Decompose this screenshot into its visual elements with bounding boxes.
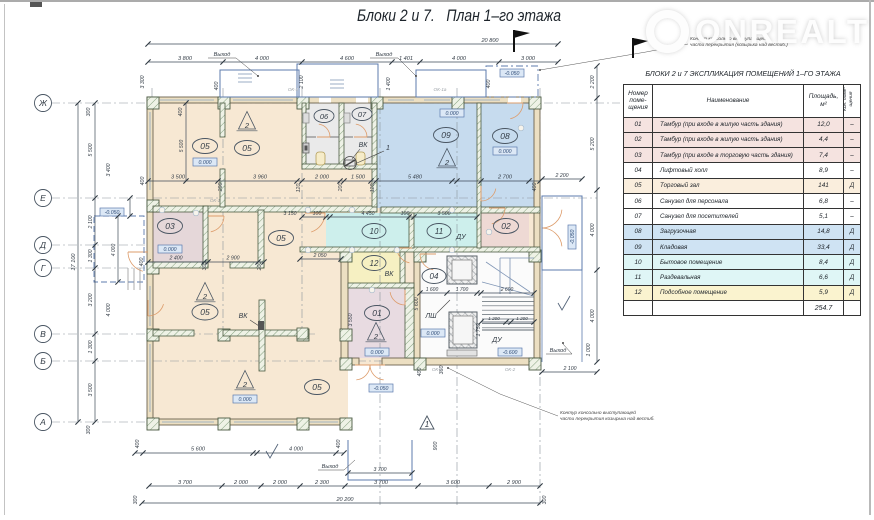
svg-text:400: 400: [178, 108, 184, 117]
svg-text:300: 300: [133, 496, 139, 505]
svg-text:100: 100: [401, 211, 410, 217]
svg-text:4 000: 4 000: [590, 309, 596, 322]
svg-text:3 700: 3 700: [374, 467, 387, 473]
svg-text:Выход: Выход: [376, 52, 393, 58]
svg-text:400: 400: [135, 440, 141, 449]
svg-text:2 200: 2 200: [555, 173, 569, 179]
svg-text:4 000: 4 000: [255, 56, 270, 62]
svg-text:3 550: 3 550: [348, 313, 354, 326]
svg-text:02: 02: [501, 221, 511, 231]
svg-text:5 500: 5 500: [179, 140, 185, 153]
svg-text:4 450: 4 450: [362, 211, 375, 217]
svg-text:Д: Д: [39, 240, 46, 250]
svg-text:3 700: 3 700: [374, 480, 389, 486]
svg-text:300: 300: [86, 426, 92, 435]
svg-text:2: 2: [444, 158, 450, 167]
svg-text:400: 400: [139, 258, 145, 267]
svg-text:05: 05: [200, 141, 210, 151]
svg-text:части перекрытия козырька над: части перекрытия козырька над вестиб.: [560, 416, 655, 422]
svg-text:ОК-1: ОК-1: [288, 87, 299, 92]
svg-text:-0.050: -0.050: [374, 386, 389, 392]
svg-text:1 700: 1 700: [456, 287, 469, 293]
svg-text:4 000: 4 000: [289, 447, 304, 453]
svg-text:4 000: 4 000: [106, 303, 112, 316]
svg-text:1: 1: [425, 420, 429, 429]
svg-text:Ж: Ж: [38, 98, 48, 108]
svg-text:Б: Б: [40, 356, 46, 366]
svg-text:Выход: Выход: [214, 52, 231, 58]
svg-text:12: 12: [370, 259, 379, 268]
svg-text:0.000: 0.000: [427, 331, 440, 337]
svg-text:0.000: 0.000: [199, 160, 212, 166]
svg-text:3 960: 3 960: [253, 175, 268, 181]
svg-text:В: В: [40, 329, 46, 339]
svg-text:2 900: 2 900: [226, 256, 240, 262]
svg-text:ОК-2: ОК-2: [432, 367, 443, 372]
svg-text:2: 2: [242, 380, 248, 389]
svg-text:2 400: 2 400: [169, 256, 183, 262]
svg-text:0.000: 0.000: [164, 247, 177, 253]
svg-text:1 400: 1 400: [386, 77, 392, 90]
svg-text:1 300: 1 300: [88, 249, 94, 262]
svg-text:400: 400: [140, 177, 146, 186]
svg-text:0.000: 0.000: [371, 350, 384, 356]
svg-text:ДУ: ДУ: [491, 337, 503, 344]
svg-text:17 100: 17 100: [71, 253, 77, 271]
svg-text:100: 100: [313, 211, 322, 217]
svg-text:2 100: 2 100: [88, 215, 94, 229]
svg-text:400: 400: [336, 440, 342, 449]
svg-text:3 500: 3 500: [438, 211, 451, 217]
svg-text:3 800: 3 800: [178, 56, 193, 62]
svg-text:1 000: 1 000: [586, 343, 592, 356]
svg-text:5 480: 5 480: [408, 175, 423, 181]
svg-text:ДУ: ДУ: [455, 234, 467, 241]
svg-text:5 600: 5 600: [191, 447, 206, 453]
svg-text:300: 300: [86, 108, 92, 117]
svg-text:04: 04: [430, 272, 439, 281]
svg-text:2 600: 2 600: [500, 287, 514, 293]
svg-text:2: 2: [373, 332, 379, 341]
svg-text:2 000: 2 000: [314, 175, 330, 181]
svg-text:2 000: 2 000: [272, 480, 288, 486]
svg-text:4 000: 4 000: [111, 244, 117, 257]
svg-text:06: 06: [320, 112, 329, 121]
svg-text:0.000: 0.000: [446, 111, 459, 117]
svg-text:2 100: 2 100: [299, 75, 305, 89]
svg-text:20 800: 20 800: [480, 38, 499, 44]
svg-text:3 700: 3 700: [178, 480, 193, 486]
svg-text:1 500: 1 500: [351, 175, 366, 181]
svg-text:2: 2: [244, 121, 250, 130]
svg-text:07: 07: [358, 110, 367, 119]
svg-text:ОК-1а: ОК-1а: [434, 87, 447, 92]
svg-text:2 200: 2 200: [590, 75, 596, 89]
svg-text:ОК-2: ОК-2: [505, 367, 516, 372]
svg-text:2: 2: [202, 292, 208, 301]
svg-text:1 300: 1 300: [88, 340, 94, 353]
svg-text:1 200: 1 200: [488, 316, 500, 321]
svg-text:ВК: ВК: [239, 313, 249, 320]
svg-text:200: 200: [257, 262, 263, 272]
svg-text:0.000: 0.000: [499, 149, 512, 155]
svg-text:10: 10: [370, 227, 379, 236]
svg-text:03: 03: [165, 221, 175, 231]
svg-text:400: 400: [417, 368, 423, 377]
svg-text:4 000: 4 000: [590, 223, 596, 236]
svg-text:300: 300: [202, 262, 208, 271]
svg-text:400: 400: [486, 80, 492, 89]
svg-text:1: 1: [386, 145, 390, 152]
svg-text:4 600: 4 600: [340, 56, 355, 62]
svg-text:ВК: ВК: [359, 142, 369, 149]
svg-text:1 401: 1 401: [399, 56, 413, 62]
svg-text:20 200: 20 200: [335, 497, 354, 503]
svg-text:120: 120: [370, 184, 376, 193]
svg-text:05: 05: [276, 233, 286, 243]
svg-text:А: А: [39, 417, 46, 427]
svg-text:-0.050: -0.050: [105, 210, 120, 216]
svg-text:01: 01: [372, 308, 382, 318]
svg-text:2 700: 2 700: [497, 175, 513, 181]
svg-text:3 600: 3 600: [446, 480, 461, 486]
svg-text:3 300: 3 300: [140, 75, 146, 88]
svg-text:120: 120: [296, 184, 302, 193]
svg-text:0.000: 0.000: [239, 397, 252, 403]
svg-text:ВК: ВК: [385, 271, 395, 278]
svg-text:2 100: 2 100: [563, 366, 577, 372]
svg-text:300: 300: [542, 496, 548, 505]
svg-text:2 050: 2 050: [313, 253, 327, 259]
svg-text:ОК-1: ОК-1: [210, 198, 221, 203]
svg-text:Выход: Выход: [550, 348, 567, 354]
svg-text:200: 200: [338, 183, 344, 193]
svg-text:Выход: Выход: [322, 464, 339, 470]
svg-text:400: 400: [532, 183, 538, 192]
svg-text:ЛШ: ЛШ: [424, 313, 437, 320]
svg-text:5 200: 5 200: [590, 137, 596, 150]
svg-text:1 200: 1 200: [516, 316, 528, 321]
svg-text:900: 900: [433, 442, 439, 451]
svg-text:1 750: 1 750: [476, 323, 482, 336]
svg-text:-0.050: -0.050: [570, 230, 576, 245]
svg-text:5 500: 5 500: [88, 143, 94, 156]
svg-text:Контур консольно выступающей: Контур консольно выступающей: [560, 409, 636, 416]
svg-text:400: 400: [214, 82, 220, 91]
svg-text:-0.600: -0.600: [503, 350, 518, 356]
svg-text:2 300: 2 300: [314, 480, 330, 486]
svg-text:09: 09: [441, 130, 451, 140]
svg-text:05: 05: [200, 307, 210, 317]
svg-text:3 500: 3 500: [171, 175, 186, 181]
svg-text:11: 11: [435, 227, 443, 236]
svg-text:3 150: 3 150: [284, 211, 297, 217]
svg-text:3 400: 3 400: [106, 163, 112, 176]
svg-text:3 200: 3 200: [88, 293, 94, 306]
svg-text:2 900: 2 900: [506, 480, 522, 486]
svg-text:05: 05: [242, 143, 252, 153]
svg-text:3 500: 3 500: [88, 383, 94, 396]
svg-text:2 000: 2 000: [233, 480, 249, 486]
svg-text:Е: Е: [40, 193, 46, 203]
svg-text:200: 200: [218, 183, 224, 193]
svg-text:05: 05: [312, 382, 322, 392]
svg-text:5 600: 5 600: [414, 297, 420, 310]
svg-text:08: 08: [500, 131, 510, 141]
svg-text:3 000: 3 000: [521, 56, 536, 62]
svg-text:-0.050: -0.050: [505, 71, 520, 77]
svg-text:4 000: 4 000: [452, 56, 467, 62]
svg-text:1 600: 1 600: [426, 287, 439, 293]
